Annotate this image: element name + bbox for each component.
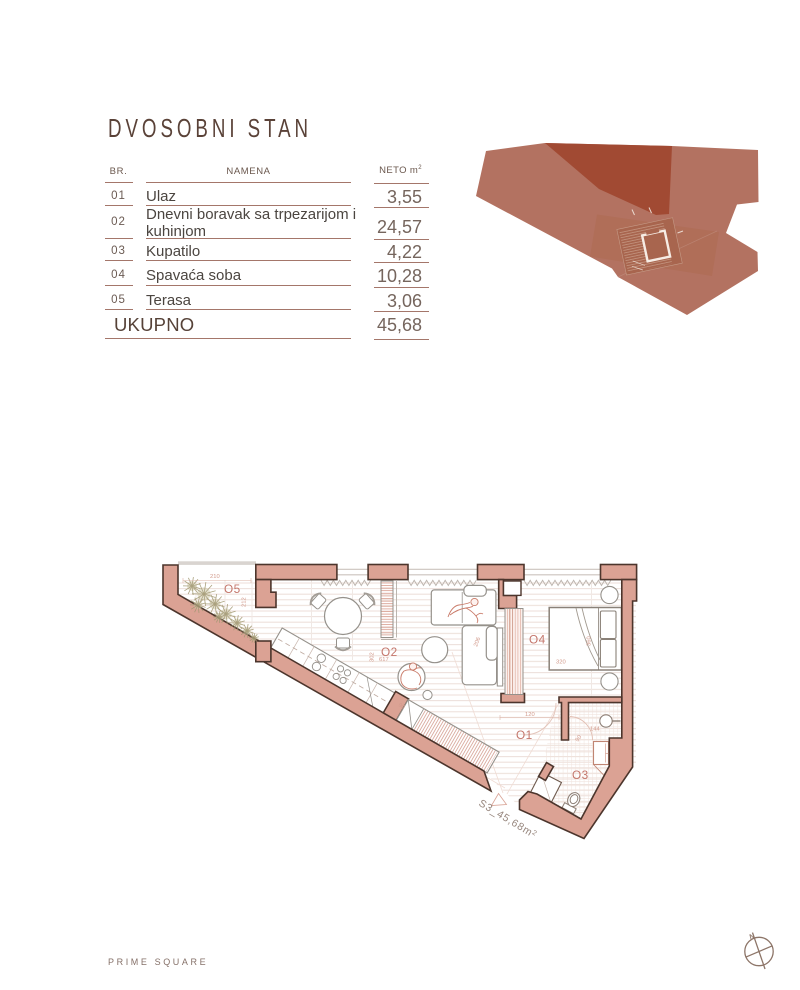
svg-text:210: 210 xyxy=(210,574,220,580)
svg-text:212: 212 xyxy=(242,597,248,607)
svg-text:302: 302 xyxy=(370,652,376,662)
svg-text:120: 120 xyxy=(525,712,535,718)
svg-text:O1: O1 xyxy=(516,728,533,742)
svg-text:O5: O5 xyxy=(224,582,241,596)
svg-text:144: 144 xyxy=(590,727,600,733)
svg-text:360: 360 xyxy=(587,636,593,646)
svg-text:O4: O4 xyxy=(529,633,546,647)
svg-text:O3: O3 xyxy=(572,768,589,782)
svg-text:617: 617 xyxy=(379,657,389,663)
svg-text:320: 320 xyxy=(556,660,566,666)
svg-text:N: N xyxy=(749,933,756,941)
